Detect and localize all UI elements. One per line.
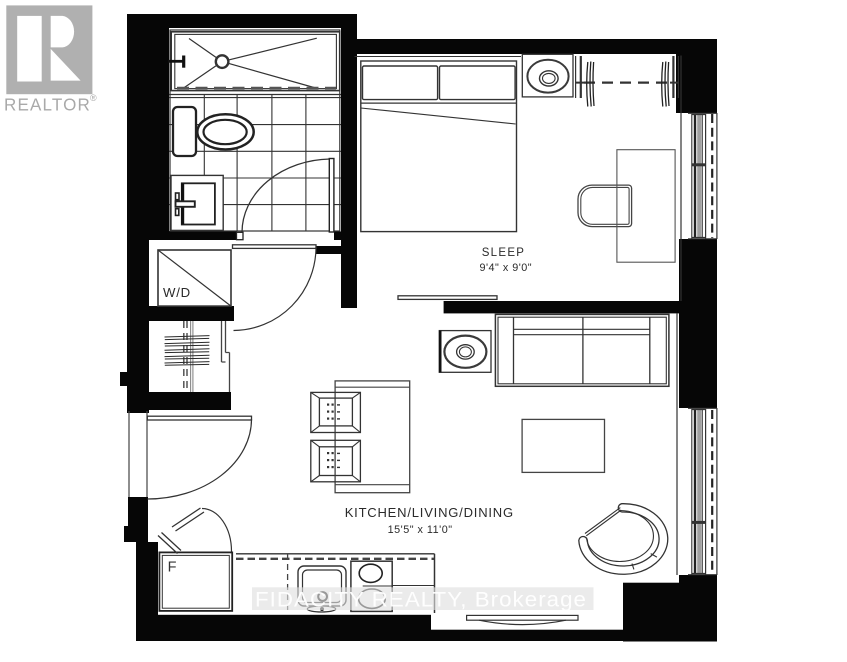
- svg-text:®: ®: [90, 93, 97, 103]
- svg-text:KITCHEN/LIVING/DINING: KITCHEN/LIVING/DINING: [345, 505, 514, 520]
- svg-text:SLEEP: SLEEP: [482, 247, 526, 259]
- svg-text:REALTOR: REALTOR: [4, 95, 91, 115]
- svg-text:9'4" x 9'0": 9'4" x 9'0": [479, 262, 532, 274]
- svg-text:15'5" x 11'0": 15'5" x 11'0": [388, 524, 453, 536]
- svg-text:W/D: W/D: [163, 285, 191, 300]
- svg-text:FIDACITY REALTY, Brokerage: FIDACITY REALTY, Brokerage: [255, 588, 587, 612]
- svg-text:F: F: [168, 560, 177, 576]
